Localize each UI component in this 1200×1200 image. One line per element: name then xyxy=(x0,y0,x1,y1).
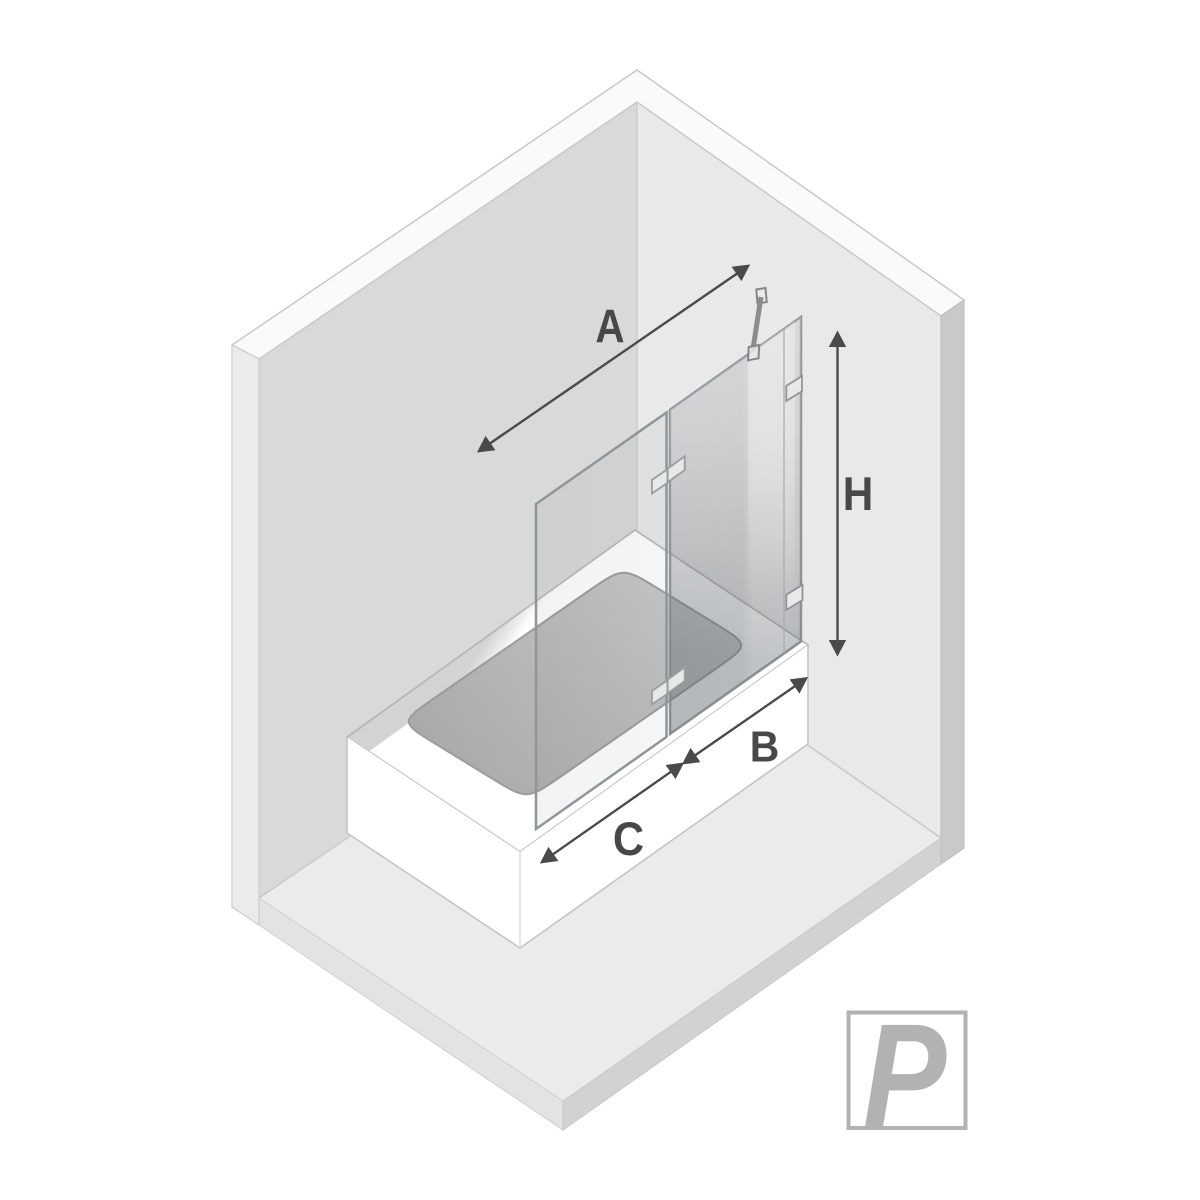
svg-text:B: B xyxy=(750,723,780,772)
svg-text:H: H xyxy=(843,469,874,521)
svg-text:P: P xyxy=(863,993,947,1157)
svg-text:C: C xyxy=(613,812,644,865)
svg-text:A: A xyxy=(595,301,624,354)
